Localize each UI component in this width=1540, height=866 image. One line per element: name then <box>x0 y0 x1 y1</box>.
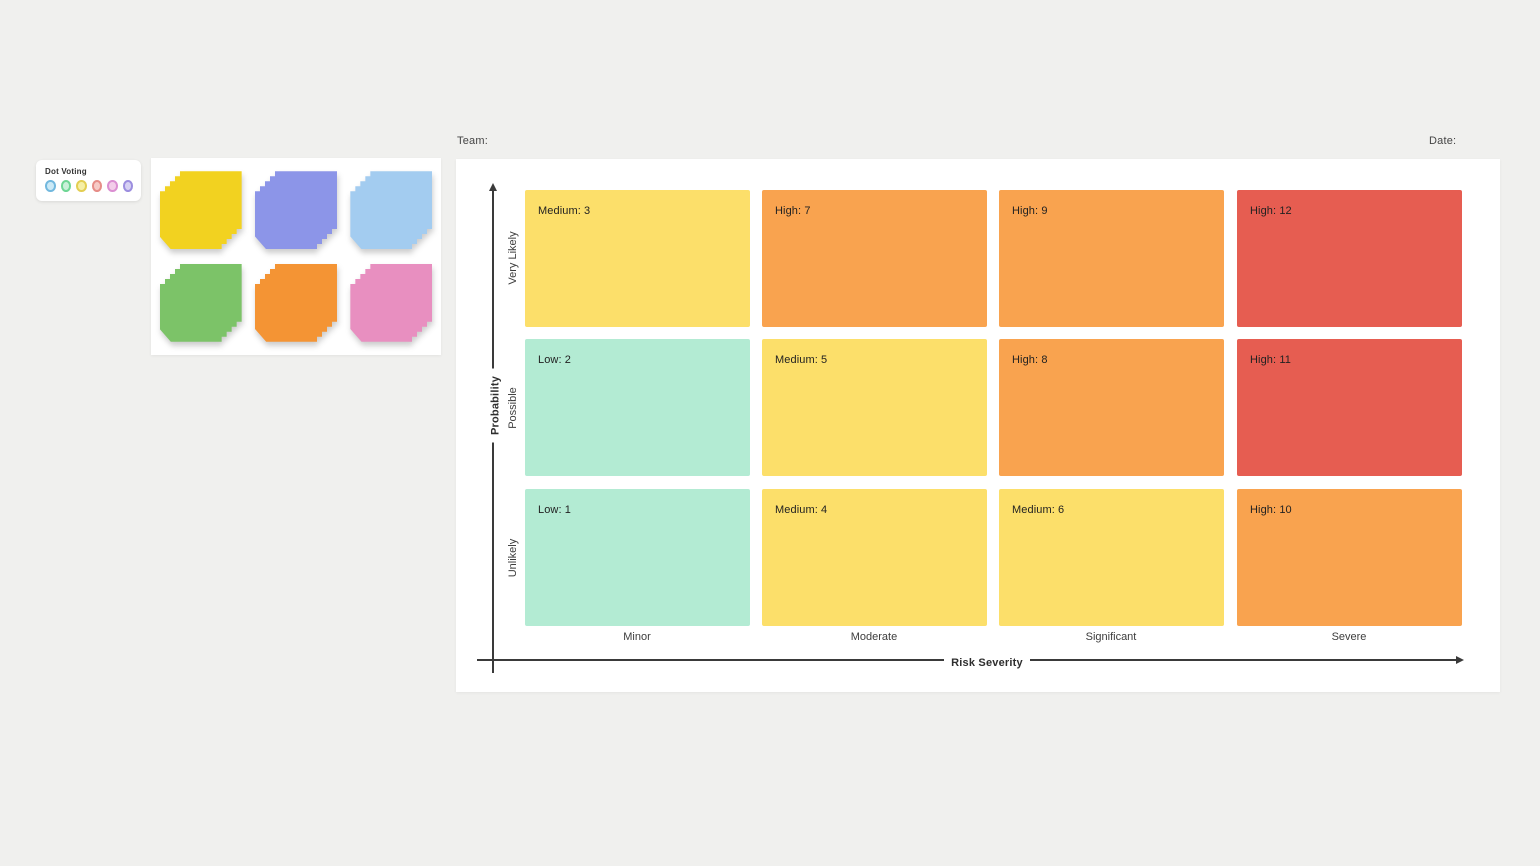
x-axis-title: Risk Severity <box>917 653 1057 668</box>
risk-matrix-canvas: Probability Risk Severity Very Likely Po… <box>456 159 1500 692</box>
team-label[interactable]: Team: <box>457 135 488 147</box>
dot-voting-panel[interactable]: Dot Voting <box>36 160 141 201</box>
sticky-sheet <box>160 191 222 249</box>
row-label-unlikely: Unlikely <box>507 498 521 618</box>
cell-label: Low: 1 <box>538 504 571 516</box>
matrix-cell-unlikely-moderate[interactable]: Medium: 4 <box>762 489 987 626</box>
matrix-cell-possible-minor[interactable]: Low: 2 <box>525 339 750 476</box>
cell-label: Medium: 6 <box>1012 504 1064 516</box>
cell-label: Medium: 3 <box>538 205 590 217</box>
matrix-cell-possible-moderate[interactable]: Medium: 5 <box>762 339 987 476</box>
sticky-stack-yellow[interactable] <box>160 171 242 249</box>
right-arrow-icon <box>1456 656 1464 664</box>
vote-dot-blue[interactable] <box>45 180 56 192</box>
cell-label: High: 10 <box>1250 504 1292 516</box>
sticky-stack-pink[interactable] <box>350 264 432 342</box>
matrix-cell-very-likely-moderate[interactable]: High: 7 <box>762 190 987 327</box>
vote-dot-purple[interactable] <box>123 180 134 192</box>
cell-label: Medium: 5 <box>775 354 827 366</box>
y-axis-title: Probability <box>486 346 501 466</box>
sticky-sheet <box>350 191 412 249</box>
row-label-very-likely: Very Likely <box>507 198 521 318</box>
sticky-stack-purple[interactable] <box>255 171 337 249</box>
cell-label: High: 7 <box>775 205 811 217</box>
up-arrow-icon <box>489 183 497 191</box>
dot-voting-title: Dot Voting <box>45 167 133 176</box>
cell-label: High: 11 <box>1250 354 1291 366</box>
row-label-possible: Possible <box>507 348 521 468</box>
cell-label: Low: 2 <box>538 354 571 366</box>
matrix-cell-unlikely-significant[interactable]: Medium: 6 <box>999 489 1224 626</box>
matrix-cell-possible-significant[interactable]: High: 8 <box>999 339 1224 476</box>
sticky-notes-panel <box>151 158 441 355</box>
matrix-cell-unlikely-severe[interactable]: High: 10 <box>1237 489 1462 626</box>
cell-label: High: 12 <box>1250 205 1292 217</box>
dot-voting-dots <box>45 180 133 192</box>
sticky-sheet <box>255 191 317 249</box>
col-label-moderate: Moderate <box>804 631 944 645</box>
matrix-cell-very-likely-significant[interactable]: High: 9 <box>999 190 1224 327</box>
matrix-cell-unlikely-minor[interactable]: Low: 1 <box>525 489 750 626</box>
cell-label: Medium: 4 <box>775 504 827 516</box>
vote-dot-green[interactable] <box>61 180 72 192</box>
matrix-cell-very-likely-severe[interactable]: High: 12 <box>1237 190 1462 327</box>
sticky-stack-blue[interactable] <box>350 171 432 249</box>
cell-label: High: 8 <box>1012 354 1048 366</box>
col-label-minor: Minor <box>567 631 707 645</box>
col-label-significant: Significant <box>1041 631 1181 645</box>
vote-dot-red[interactable] <box>92 180 103 192</box>
sticky-sheet <box>350 284 412 342</box>
vote-dot-pink[interactable] <box>107 180 118 192</box>
matrix-cell-possible-severe[interactable]: High: 11 <box>1237 339 1462 476</box>
sticky-stack-green[interactable] <box>160 264 242 342</box>
cell-label: High: 9 <box>1012 205 1048 217</box>
col-label-severe: Severe <box>1279 631 1419 645</box>
sticky-stack-orange[interactable] <box>255 264 337 342</box>
vote-dot-yellow[interactable] <box>76 180 87 192</box>
sticky-sheet <box>255 284 317 342</box>
matrix-cell-very-likely-minor[interactable]: Medium: 3 <box>525 190 750 327</box>
date-label[interactable]: Date: <box>1429 135 1456 147</box>
sticky-sheet <box>160 284 222 342</box>
